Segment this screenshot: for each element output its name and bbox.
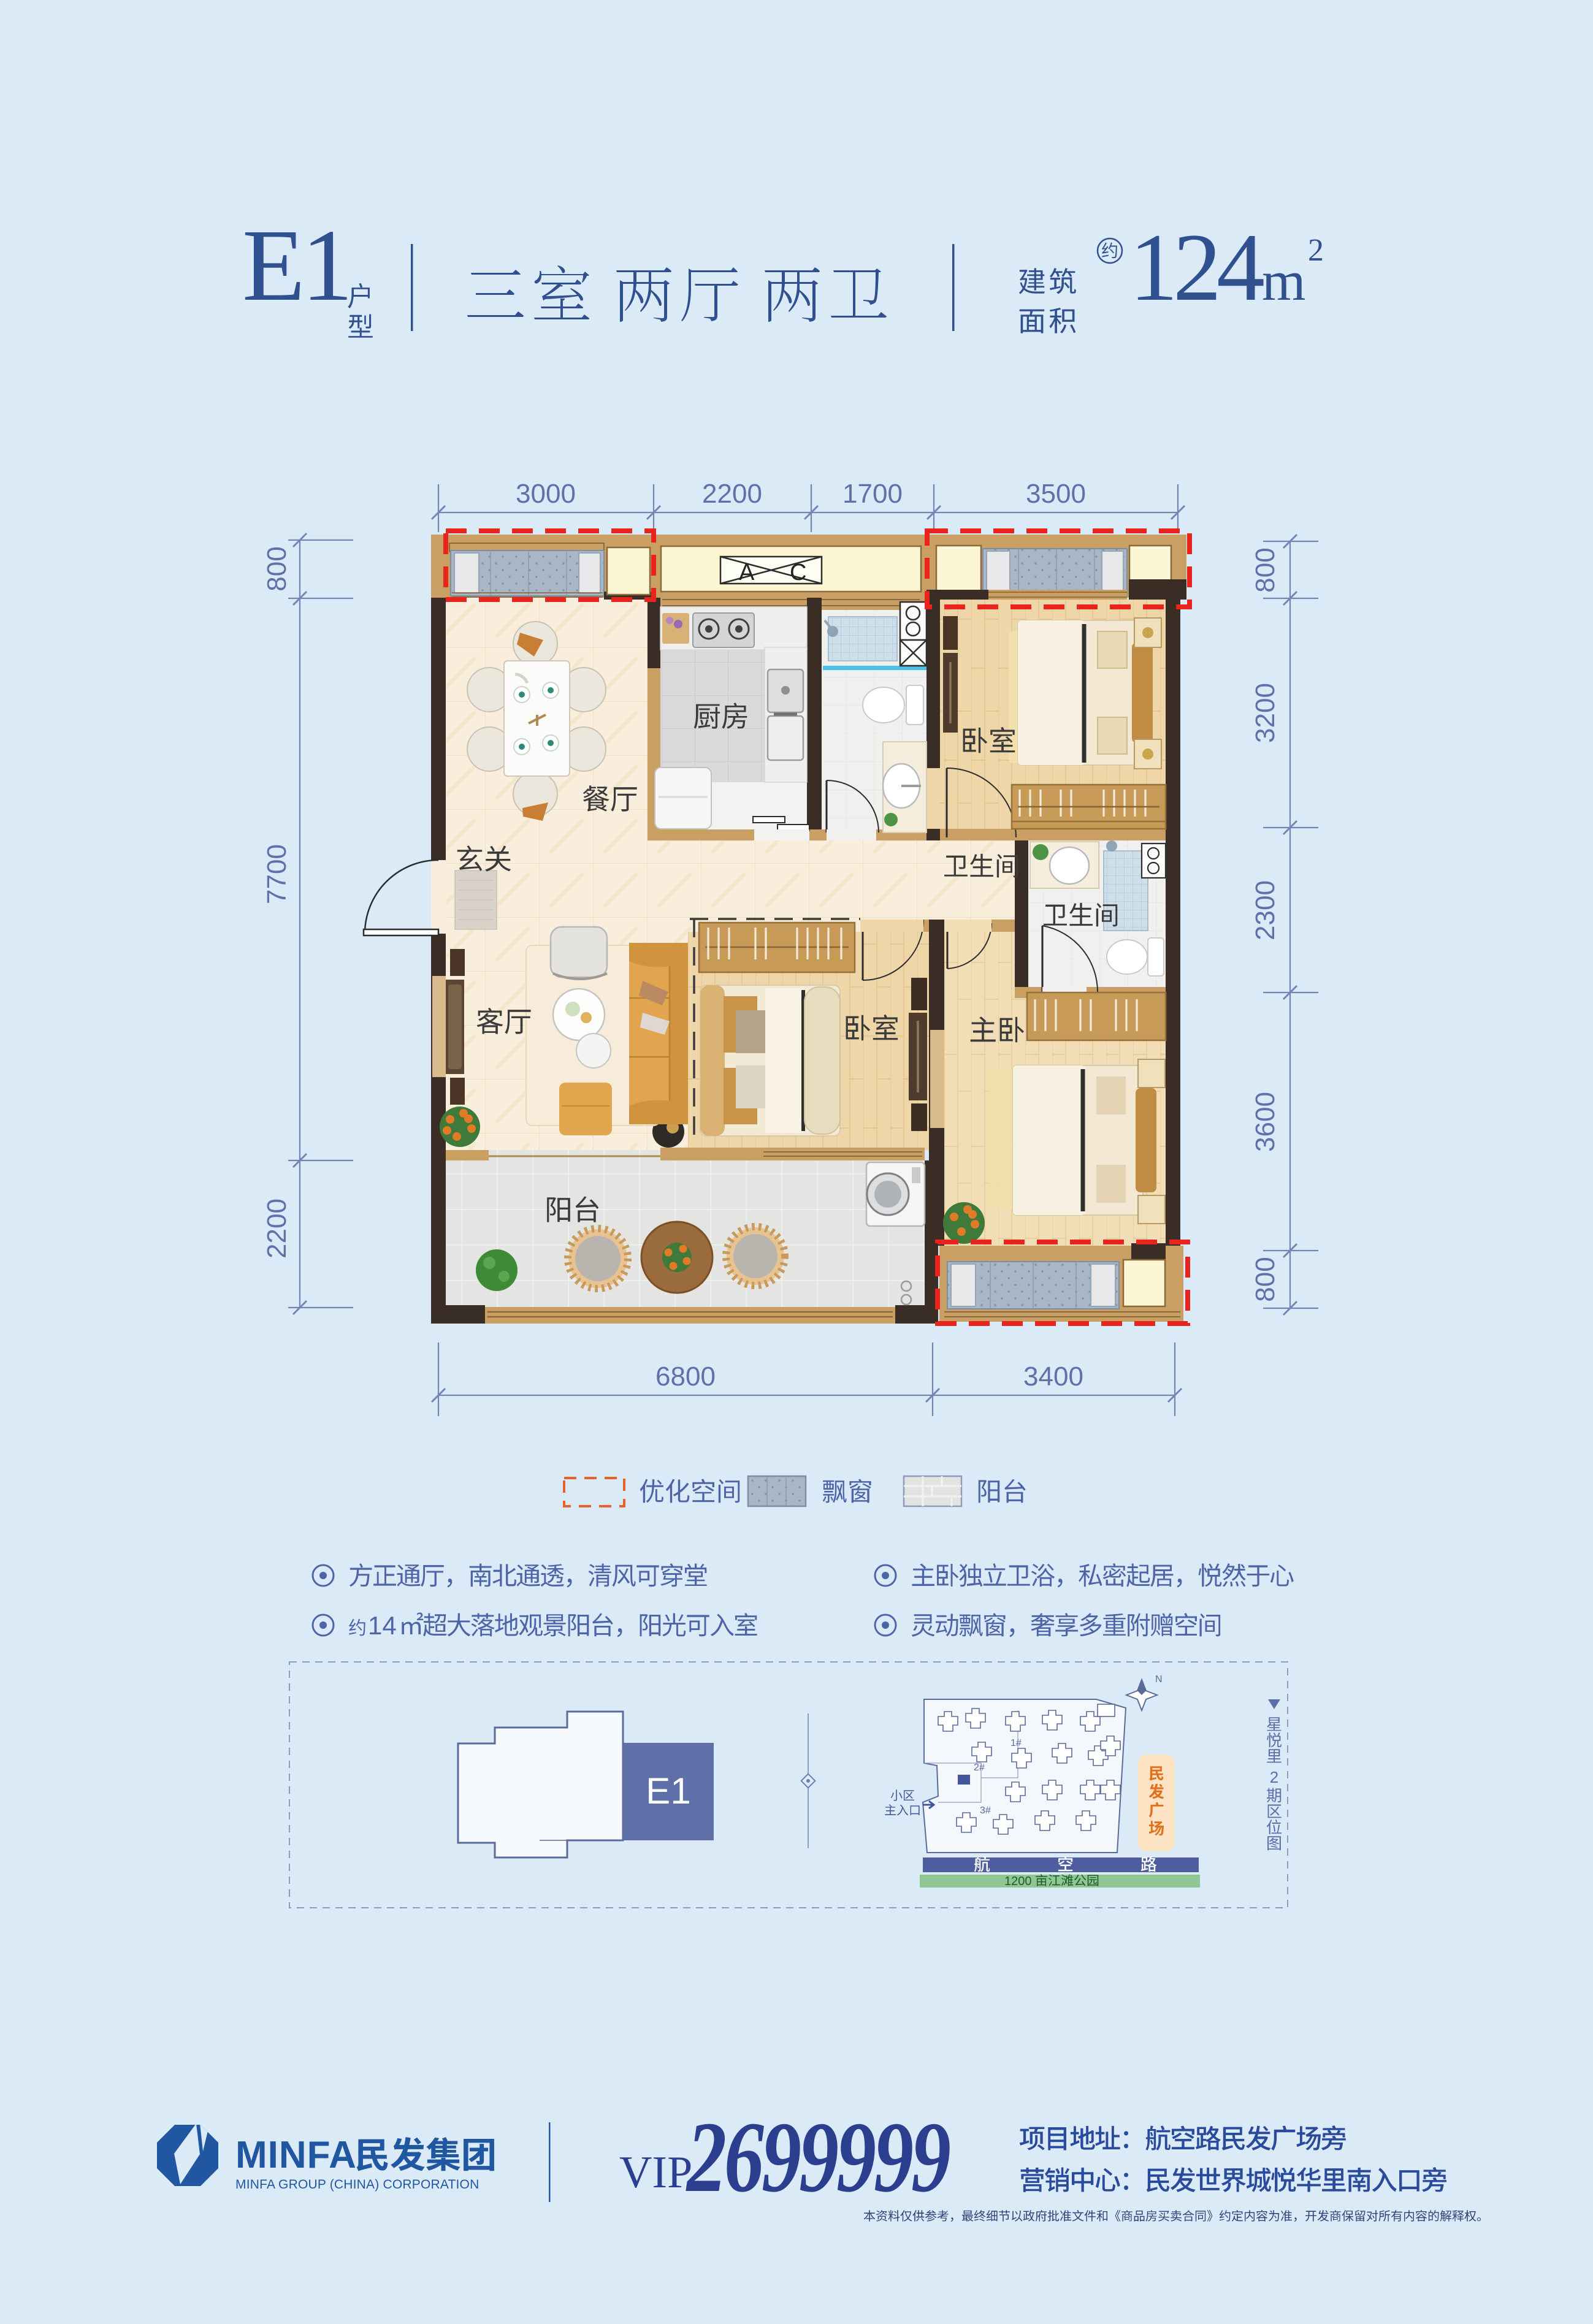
svg-text:E1: E1 <box>242 208 350 322</box>
svg-text:2: 2 <box>1270 1768 1278 1786</box>
svg-text:2699999: 2699999 <box>686 2101 950 2213</box>
svg-text:2#: 2# <box>974 1762 985 1773</box>
svg-text:3#: 3# <box>980 1805 991 1816</box>
svg-text:2200: 2200 <box>702 479 762 509</box>
svg-text:3500: 3500 <box>1026 479 1086 509</box>
svg-text:C: C <box>790 560 806 585</box>
svg-text:A: A <box>739 560 755 585</box>
svg-text:E1: E1 <box>646 1770 690 1812</box>
svg-text:m: m <box>1262 250 1306 312</box>
svg-text:2: 2 <box>1308 233 1324 268</box>
svg-text:2200: 2200 <box>262 1198 292 1259</box>
svg-text:800: 800 <box>1250 547 1280 592</box>
svg-text:3400: 3400 <box>1023 1362 1083 1392</box>
svg-text:800: 800 <box>262 546 292 591</box>
svg-text:2300: 2300 <box>1250 880 1280 940</box>
svg-text:1200: 1200 <box>1004 1875 1032 1888</box>
svg-text:MINFA GROUP (CHINA) CORPORAT: MINFA GROUP (CHINA) CORPORATION <box>235 2177 479 2192</box>
svg-text:1700: 1700 <box>842 479 903 509</box>
svg-text:14: 14 <box>368 1611 397 1640</box>
svg-text:3600: 3600 <box>1250 1092 1280 1152</box>
svg-text:7700: 7700 <box>262 844 292 904</box>
svg-text:3000: 3000 <box>516 479 576 509</box>
svg-text:MINFA: MINFA <box>235 2134 357 2176</box>
svg-text:1#: 1# <box>1010 1738 1022 1748</box>
svg-text:124: 124 <box>1129 214 1264 321</box>
svg-text:VIP: VIP <box>619 2147 692 2198</box>
svg-text:N: N <box>1155 1674 1163 1685</box>
svg-text:3200: 3200 <box>1250 683 1280 743</box>
svg-text:6800: 6800 <box>655 1362 716 1392</box>
svg-text:800: 800 <box>1250 1257 1280 1301</box>
